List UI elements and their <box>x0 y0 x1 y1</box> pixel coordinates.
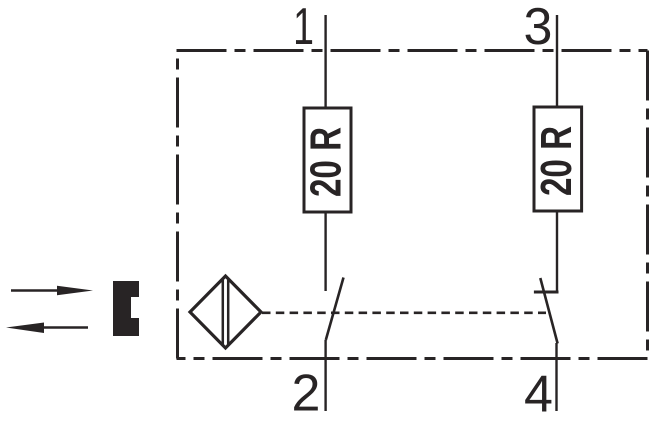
svg-text:20 R: 20 R <box>302 127 351 197</box>
svg-text:20 R: 20 R <box>532 126 581 196</box>
svg-text:4: 4 <box>524 366 553 424</box>
svg-text:3: 3 <box>524 0 553 56</box>
svg-text:1: 1 <box>293 0 314 55</box>
svg-text:2: 2 <box>292 365 321 423</box>
